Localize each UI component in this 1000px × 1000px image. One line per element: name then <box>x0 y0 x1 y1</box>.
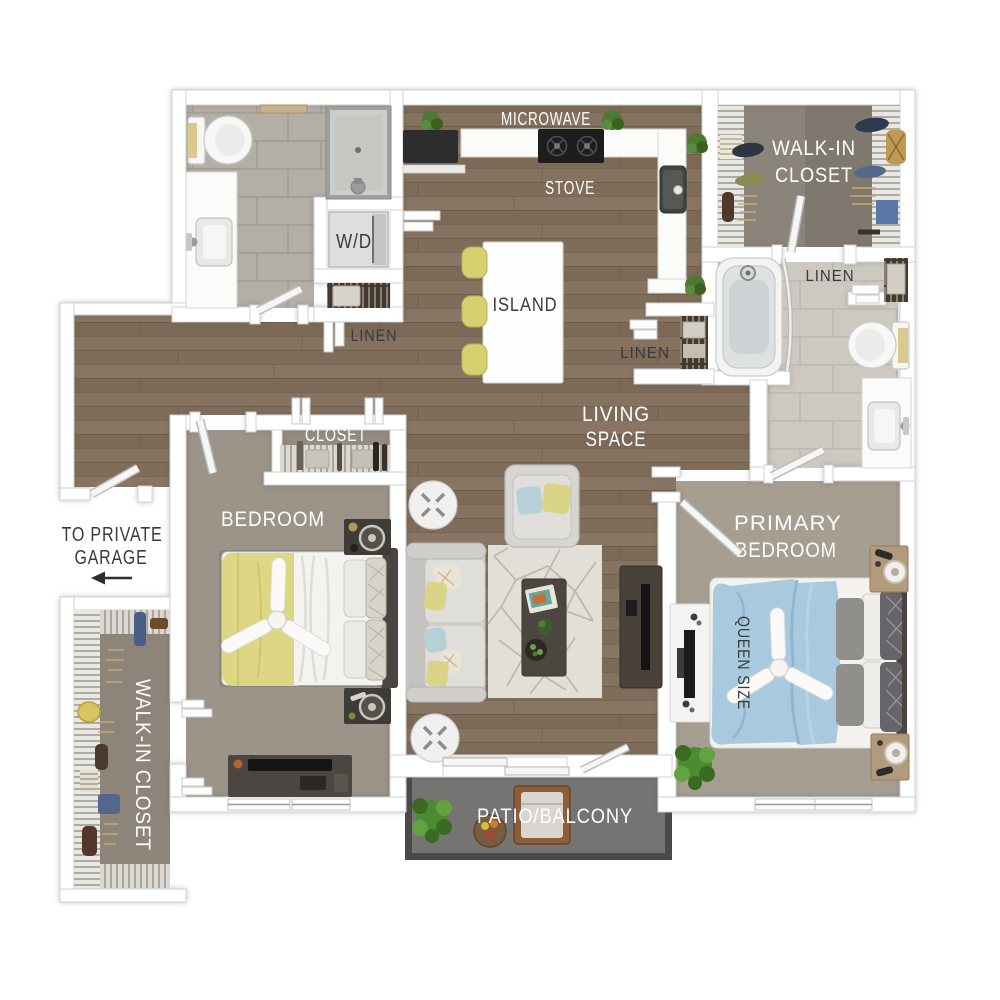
svg-text:LIVING: LIVING <box>582 403 650 426</box>
svg-text:CLOSET: CLOSET <box>305 425 367 445</box>
svg-text:W/D: W/D <box>336 231 372 253</box>
svg-text:MICROWAVE: MICROWAVE <box>501 109 591 129</box>
svg-text:GARAGE: GARAGE <box>75 547 148 569</box>
svg-text:ISLAND: ISLAND <box>493 295 558 316</box>
svg-text:STOVE: STOVE <box>545 178 595 198</box>
svg-text:SPACE: SPACE <box>586 428 647 451</box>
svg-text:CLOSET: CLOSET <box>775 164 853 187</box>
svg-text:LINEN: LINEN <box>620 345 670 362</box>
svg-text:LINEN: LINEN <box>351 326 398 345</box>
svg-text:TO PRIVATE: TO PRIVATE <box>62 524 163 546</box>
svg-text:WALK-IN CLOSET: WALK-IN CLOSET <box>131 679 154 851</box>
svg-text:PRIMARY: PRIMARY <box>734 512 842 535</box>
svg-text:PATIO/BALCONY: PATIO/BALCONY <box>477 805 633 828</box>
svg-text:BEDROOM: BEDROOM <box>735 539 837 562</box>
svg-text:QUEEN SIZE: QUEEN SIZE <box>734 616 753 710</box>
svg-text:BEDROOM: BEDROOM <box>221 508 325 531</box>
svg-text:LINEN: LINEN <box>806 268 855 285</box>
svg-text:WALK-IN: WALK-IN <box>772 137 856 160</box>
